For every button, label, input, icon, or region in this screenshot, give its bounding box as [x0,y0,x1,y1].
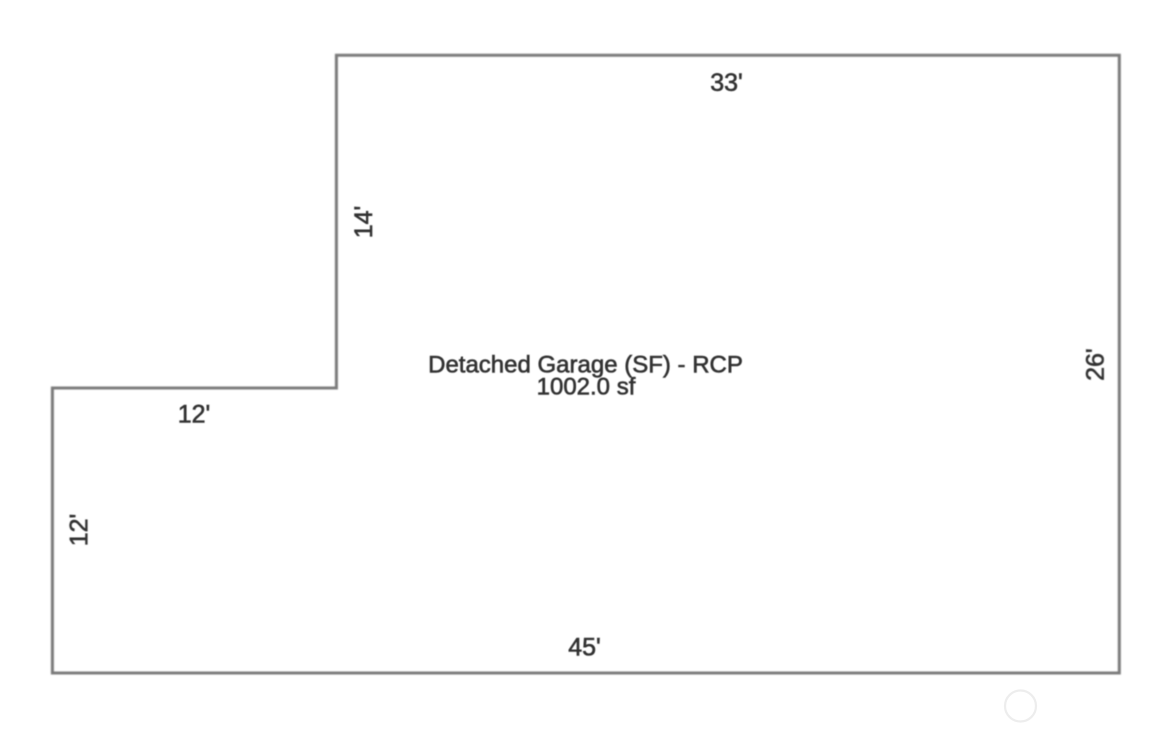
svg-text:26': 26' [1082,348,1110,381]
svg-text:33': 33' [710,69,743,97]
svg-text:12': 12' [65,514,93,547]
svg-text:14': 14' [350,206,378,239]
svg-text:45': 45' [568,634,601,662]
svg-text:12': 12' [178,401,211,429]
svg-text:1002.0 sf: 1002.0 sf [537,373,636,400]
